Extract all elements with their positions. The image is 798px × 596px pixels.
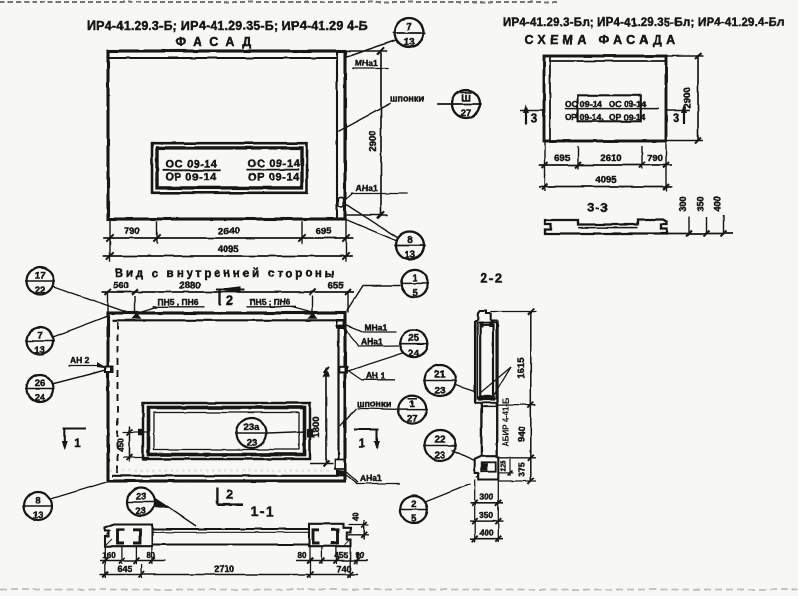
- svg-text:740: 740: [336, 564, 351, 574]
- svg-text:4095: 4095: [217, 244, 239, 255]
- svg-text:375: 375: [517, 462, 527, 476]
- svg-text:8: 8: [407, 235, 413, 246]
- svg-text:13: 13: [35, 345, 46, 356]
- svg-text:ПН5 ; ПН6: ПН5 ; ПН6: [249, 297, 291, 307]
- svg-text:ОР 09-14,: ОР 09-14,: [565, 112, 604, 122]
- svg-text:455: 455: [335, 551, 349, 560]
- svg-text:26: 26: [35, 378, 46, 389]
- svg-text:2900: 2900: [683, 87, 694, 108]
- svg-text:ПН5 , ПН6: ПН5 , ПН6: [157, 297, 198, 307]
- svg-text:25: 25: [409, 333, 420, 344]
- svg-text:400: 400: [479, 528, 493, 538]
- svg-text:АНа1: АНа1: [361, 337, 383, 347]
- svg-text:1: 1: [74, 438, 81, 450]
- svg-text:23а: 23а: [244, 422, 261, 433]
- svg-text:3-3: 3-3: [587, 200, 609, 215]
- svg-text:90: 90: [355, 551, 364, 560]
- svg-text:ОС 09-14: ОС 09-14: [609, 99, 646, 109]
- svg-text:ИР4-41.29.3-Бл; ИР4-41.29.35-Б: ИР4-41.29.3-Бл; ИР4-41.29.35-Бл; ИР4-41.…: [503, 17, 785, 29]
- svg-text:АНа1: АНа1: [356, 183, 378, 193]
- svg-text:160: 160: [102, 551, 116, 560]
- svg-text:ОР 09-14: ОР 09-14: [609, 112, 646, 122]
- svg-text:ОР 09-14: ОР 09-14: [248, 171, 300, 183]
- svg-text:80: 80: [298, 551, 307, 560]
- svg-text:7: 7: [37, 331, 42, 342]
- svg-text:Ш: Ш: [461, 93, 471, 104]
- svg-text:2: 2: [226, 293, 233, 308]
- svg-text:300: 300: [479, 492, 493, 502]
- svg-text:2710: 2710: [214, 564, 234, 574]
- svg-text:22: 22: [434, 435, 446, 446]
- svg-text:23: 23: [434, 386, 446, 397]
- svg-text:350: 350: [696, 196, 706, 211]
- svg-text:3: 3: [673, 113, 679, 125]
- svg-text:МНа1: МНа1: [355, 58, 378, 68]
- svg-text:24: 24: [409, 348, 420, 359]
- svg-text:ИР4-41.29.3-Б; ИР4-41.29.35-Б;: ИР4-41.29.3-Б; ИР4-41.29.35-Б; ИР4-41.29…: [87, 19, 368, 33]
- svg-text:17: 17: [35, 271, 46, 282]
- svg-text:655: 655: [328, 281, 345, 292]
- svg-text:АНа1: АНа1: [360, 473, 382, 483]
- svg-text:2900: 2900: [368, 130, 379, 151]
- svg-text:40: 40: [352, 512, 361, 521]
- svg-text:22: 22: [35, 285, 46, 296]
- svg-text:шпонки: шпонки: [357, 399, 391, 409]
- svg-text:МНа1: МНа1: [364, 323, 387, 333]
- svg-text:940: 940: [517, 426, 528, 442]
- svg-text:450: 450: [117, 438, 126, 452]
- svg-text:80: 80: [147, 551, 156, 560]
- svg-text:СХЕМА ФАСАДА: СХЕМА ФАСАДА: [525, 33, 680, 47]
- svg-text:27: 27: [407, 414, 418, 425]
- svg-text:1615: 1615: [516, 357, 527, 379]
- svg-text:13: 13: [404, 250, 416, 261]
- svg-text:4095: 4095: [595, 175, 617, 186]
- svg-text:13: 13: [33, 510, 44, 521]
- svg-text:5: 5: [411, 514, 417, 525]
- svg-text:300: 300: [678, 196, 688, 211]
- svg-text:ФАСАД: ФАСАД: [175, 35, 258, 49]
- svg-text:ОС 09-14: ОС 09-14: [565, 99, 602, 109]
- svg-text:1: 1: [410, 399, 416, 410]
- svg-text:2880: 2880: [179, 281, 200, 292]
- svg-text:21: 21: [434, 370, 446, 381]
- svg-text:1: 1: [359, 438, 366, 450]
- svg-text:645: 645: [117, 564, 132, 574]
- svg-text:790: 790: [124, 226, 140, 237]
- svg-text:23: 23: [136, 492, 147, 503]
- svg-text:1: 1: [412, 273, 418, 284]
- svg-text:8: 8: [35, 496, 40, 507]
- svg-text:АН 2: АН 2: [70, 355, 90, 365]
- svg-text:Вид с внутренней стороны: Вид с внутренней стороны: [115, 268, 338, 280]
- svg-text:125: 125: [500, 460, 507, 471]
- svg-text:2640: 2640: [218, 226, 239, 237]
- svg-text:1-1: 1-1: [251, 504, 275, 519]
- svg-text:1800: 1800: [311, 416, 322, 437]
- svg-text:790: 790: [647, 153, 663, 164]
- svg-text:24: 24: [35, 393, 46, 404]
- svg-text:ОС 09-14: ОС 09-14: [248, 158, 301, 170]
- svg-text:ОР 09-14: ОР 09-14: [165, 171, 217, 183]
- svg-text:АН 1: АН 1: [366, 371, 386, 381]
- svg-text:2: 2: [411, 499, 416, 510]
- svg-text:7: 7: [406, 22, 412, 33]
- svg-text:23: 23: [434, 451, 446, 462]
- svg-text:ОС 09-14: ОС 09-14: [166, 158, 219, 170]
- svg-text:2610: 2610: [600, 153, 621, 164]
- svg-text:695: 695: [554, 153, 571, 164]
- svg-text:350: 350: [479, 510, 493, 520]
- svg-text:3: 3: [531, 113, 537, 125]
- svg-text:2: 2: [226, 487, 233, 502]
- svg-text:23: 23: [136, 506, 147, 517]
- svg-text:400: 400: [713, 196, 723, 211]
- svg-text:шпонки: шпонки: [390, 94, 424, 104]
- svg-text:2-2: 2-2: [480, 271, 503, 286]
- svg-text:13: 13: [403, 37, 415, 48]
- svg-text:27: 27: [461, 108, 472, 119]
- svg-text:23: 23: [246, 438, 257, 449]
- svg-text:695: 695: [316, 226, 333, 237]
- svg-text:5: 5: [412, 287, 418, 298]
- svg-text:560: 560: [113, 281, 129, 292]
